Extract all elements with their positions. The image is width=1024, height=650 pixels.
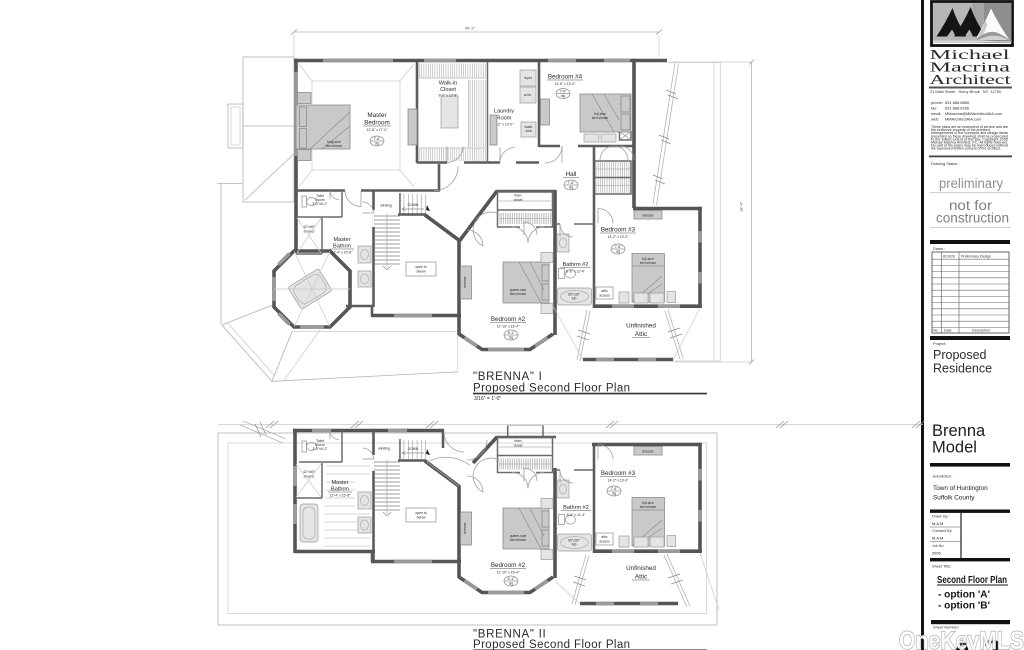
svg-text:fax:: fax: <box>931 106 937 111</box>
svg-text:631 686-6585: 631 686-6585 <box>945 100 969 105</box>
svg-text:Laundry: Laundry <box>494 109 514 115</box>
svg-text:Town of Huntington: Town of Huntington <box>933 485 988 492</box>
svg-text:Model: Model <box>932 439 977 457</box>
svg-text:Closet: Closet <box>440 87 456 93</box>
svg-text:open to: open to <box>415 511 426 515</box>
svg-text:Bathrm: Bathrm <box>333 244 351 250</box>
svg-text:Bathrm #2: Bathrm #2 <box>563 505 589 511</box>
svg-text:open to: open to <box>415 265 426 269</box>
svg-text:- option 'B': - option 'B' <box>938 600 990 612</box>
svg-text:Bedroom #4: Bedroom #4 <box>548 74 583 81</box>
svg-text:Job No:: Job No: <box>932 544 944 548</box>
svg-text:12'-6" x 13'-0": 12'-6" x 13'-0" <box>555 82 577 86</box>
svg-text:clg: clg <box>375 142 379 146</box>
svg-text:clg: clg <box>561 94 565 98</box>
svg-text:7'-6": 7'-6" <box>374 137 382 141</box>
svg-text:7'-6": 7'-6" <box>611 487 619 491</box>
svg-text:12'-4" x 15'-8": 12'-4" x 15'-8" <box>330 494 352 498</box>
svg-text:Bedroom #2: Bedroom #2 <box>491 562 526 569</box>
svg-text:closet: closet <box>514 198 523 202</box>
svg-text:3'-0"x6'-2": 3'-0"x6'-2" <box>312 447 328 451</box>
svg-text:winding: winding <box>380 204 392 208</box>
svg-text:21 Main Street Stony Brook: 21 Main Street Stony Brook NY 11790 <box>930 89 1002 94</box>
svg-text:bed shown: bed shown <box>592 116 609 120</box>
svg-text:bed shown: bed shown <box>326 144 343 148</box>
svg-text:M.A.M: M.A.M <box>932 536 943 541</box>
svg-text:linen: linen <box>514 439 521 443</box>
svg-text:sink: sink <box>525 129 531 133</box>
svg-text:clg: clg <box>616 250 620 254</box>
svg-text:Hall: Hall <box>566 171 577 178</box>
svg-text:3'-0"x6'-2": 3'-0"x6'-2" <box>312 202 328 206</box>
svg-text:OneKeyMLS: OneKeyMLS <box>899 627 1024 650</box>
svg-text:M.A.M: M.A.M <box>932 521 943 526</box>
svg-text:dresser: dresser <box>642 214 654 218</box>
svg-text:Attic: Attic <box>635 574 647 581</box>
svg-text:DOWN: DOWN <box>408 203 419 207</box>
svg-text:DOWN: DOWN <box>408 447 419 451</box>
svg-text:"BRENNA" I: "BRENNA" I <box>473 371 542 383</box>
svg-text:Room: Room <box>497 116 512 122</box>
svg-text:Drawn By:: Drawn By: <box>932 515 949 519</box>
svg-text:dresser: dresser <box>463 275 467 287</box>
svg-text:Unfinished: Unfinished <box>626 323 656 330</box>
svg-text:Dates :: Dates : <box>933 246 945 251</box>
svg-text:45'-2": 45'-2" <box>465 26 476 31</box>
svg-text:web:: web: <box>931 117 939 122</box>
svg-text:14'-2" x 13'-0": 14'-2" x 13'-0" <box>608 479 630 483</box>
svg-text:phone:: phone: <box>931 100 943 105</box>
svg-text:clg: clg <box>612 492 616 496</box>
svg-text:MMArchitectAIA.com: MMArchitectAIA.com <box>945 117 981 122</box>
svg-text:12'-10" x 16'-4": 12'-10" x 16'-4" <box>497 325 521 329</box>
svg-text:closet: closet <box>514 444 523 448</box>
svg-text:Master: Master <box>367 112 386 119</box>
svg-text:Description: Description <box>972 329 990 333</box>
svg-text:14'-2" x 13'-0": 14'-2" x 13'-0" <box>608 235 630 239</box>
svg-text:access: access <box>599 540 610 544</box>
svg-text:Drawing Status :: Drawing Status : <box>931 161 960 166</box>
svg-text:9'-0" x 13'-8": 9'-0" x 13'-8" <box>439 94 459 98</box>
svg-text:tub: tub <box>572 297 577 301</box>
svg-text:bed shown: bed shown <box>510 538 527 542</box>
svg-text:7'-2" x 13'-0": 7'-2" x 13'-0" <box>495 123 515 127</box>
svg-text:dresser: dresser <box>642 450 654 454</box>
svg-text:Residence: Residence <box>933 362 992 376</box>
svg-text:Brenna: Brenna <box>932 422 986 440</box>
svg-text:email:: email: <box>931 111 941 116</box>
svg-text:5'-1": 5'-1" <box>508 331 516 335</box>
svg-text:linen: linen <box>514 194 521 198</box>
svg-text:Proposed Second Floor Plan: Proposed Second Floor Plan <box>473 639 630 650</box>
svg-text:No.: No. <box>933 329 939 333</box>
svg-text:Checked By:: Checked By: <box>932 529 952 533</box>
svg-text:6'-6" x 11'-4": 6'-6" x 11'-4" <box>567 513 587 517</box>
svg-text:3/16" = 1'-0": 3/16" = 1'-0" <box>474 396 501 402</box>
svg-text:Second Floor Plan: Second Floor Plan <box>937 574 1007 586</box>
svg-text:winding: winding <box>378 447 390 451</box>
svg-text:the expressed written consent: the expressed written consent of the arc… <box>931 147 1001 151</box>
svg-text:below: below <box>417 516 426 520</box>
svg-text:Bedroom #3: Bedroom #3 <box>601 470 636 477</box>
svg-text:Master: Master <box>333 237 350 243</box>
svg-text:Proposed: Proposed <box>933 348 987 362</box>
svg-text:12'-10" x 16'-4": 12'-10" x 16'-4" <box>497 571 521 575</box>
svg-text:attic: attic <box>601 535 608 539</box>
svg-text:clg: clg <box>509 582 513 586</box>
svg-text:clg: clg <box>509 336 513 340</box>
svg-text:Attic: Attic <box>635 331 647 338</box>
svg-text:Master: Master <box>331 480 348 486</box>
svg-text:Jurisdiction:: Jurisdiction: <box>932 474 953 479</box>
svg-text:7'-6": 7'-6" <box>560 90 568 94</box>
svg-text:attic: attic <box>601 289 608 293</box>
svg-text:dryer: dryer <box>524 76 533 80</box>
svg-text:5'-1": 5'-1" <box>508 577 516 581</box>
svg-text:Date: Date <box>944 329 952 333</box>
svg-text:preliminary: preliminary <box>939 176 1003 191</box>
svg-text:construction: construction <box>936 211 1009 226</box>
svg-text:Bedroom #3: Bedroom #3 <box>601 227 636 234</box>
svg-text:12'-6" x 17'-0": 12'-6" x 17'-0" <box>367 128 389 132</box>
svg-text:6'-6" x 11'-4": 6'-6" x 11'-4" <box>566 270 586 274</box>
svg-text:clg: clg <box>569 186 573 190</box>
svg-text:bed shown: bed shown <box>510 292 527 296</box>
svg-text:Suffolk County: Suffolk County <box>933 495 975 502</box>
svg-text:Bathrm #2: Bathrm #2 <box>563 262 589 268</box>
svg-text:Sheet Title:: Sheet Title: <box>932 564 951 569</box>
svg-text:18'-4": 18'-4" <box>739 201 744 212</box>
svg-text:2005: 2005 <box>932 551 941 556</box>
svg-text:w./m.: w./m. <box>524 93 532 97</box>
svg-text:Architect: Architect <box>930 72 1011 87</box>
svg-text:bed shown: bed shown <box>640 261 657 265</box>
svg-text:12'-4" x 15'-8": 12'-4" x 15'-8" <box>332 251 354 255</box>
svg-text:7'-6": 7'-6" <box>615 245 623 249</box>
svg-text:MMacrina@MMArchitectAIA.com: MMacrina@MMArchitectAIA.com <box>945 111 1002 116</box>
svg-text:Bedroom #2: Bedroom #2 <box>491 316 526 323</box>
svg-text:Project:: Project: <box>933 341 946 346</box>
svg-text:Walk-in: Walk-in <box>439 81 457 87</box>
svg-text:tub: tub <box>572 543 577 547</box>
svg-text:8/19/20: 8/19/20 <box>943 255 955 259</box>
svg-text:dresser: dresser <box>463 521 467 533</box>
svg-text:below: below <box>417 270 426 274</box>
svg-text:Bathrm: Bathrm <box>331 487 349 493</box>
svg-text:Bedroom: Bedroom <box>364 120 390 127</box>
svg-text:bed shown: bed shown <box>640 505 657 509</box>
svg-text:Preliminary Design: Preliminary Design <box>961 255 991 259</box>
svg-text:631 686-6786: 631 686-6786 <box>945 106 969 111</box>
svg-text:access: access <box>599 294 610 298</box>
svg-text:7'-6": 7'-6" <box>568 181 576 185</box>
svg-text:Unfinished: Unfinished <box>626 565 656 572</box>
